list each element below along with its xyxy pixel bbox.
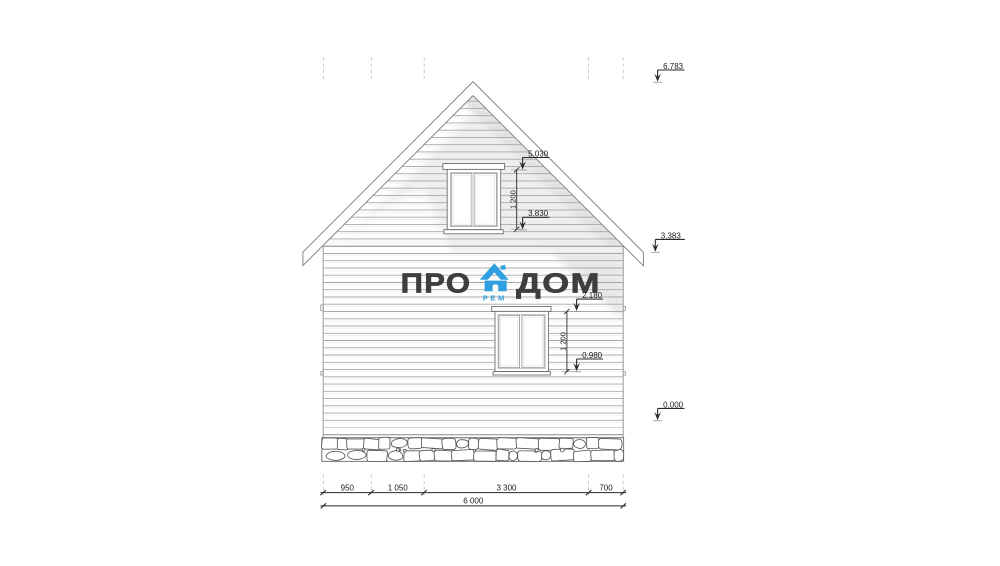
svg-text:3.830: 3.830	[528, 209, 549, 218]
svg-text:ПРО: ПРО	[401, 268, 472, 299]
svg-text:1 200: 1 200	[508, 190, 517, 209]
svg-text:0.000: 0.000	[663, 400, 684, 409]
svg-text:700: 700	[599, 483, 613, 492]
svg-text:6.783: 6.783	[663, 62, 684, 71]
svg-text:3 300: 3 300	[496, 483, 517, 492]
svg-text:6 000: 6 000	[463, 497, 484, 506]
svg-text:1 200: 1 200	[559, 332, 568, 351]
svg-text:5.030: 5.030	[528, 149, 549, 158]
svg-text:2.180: 2.180	[582, 291, 603, 300]
svg-text:1 050: 1 050	[388, 483, 409, 492]
svg-text:3.383: 3.383	[661, 231, 682, 240]
svg-text:950: 950	[341, 483, 355, 492]
svg-text:РЕМ: РЕМ	[483, 294, 507, 303]
svg-text:0.980: 0.980	[582, 351, 603, 360]
